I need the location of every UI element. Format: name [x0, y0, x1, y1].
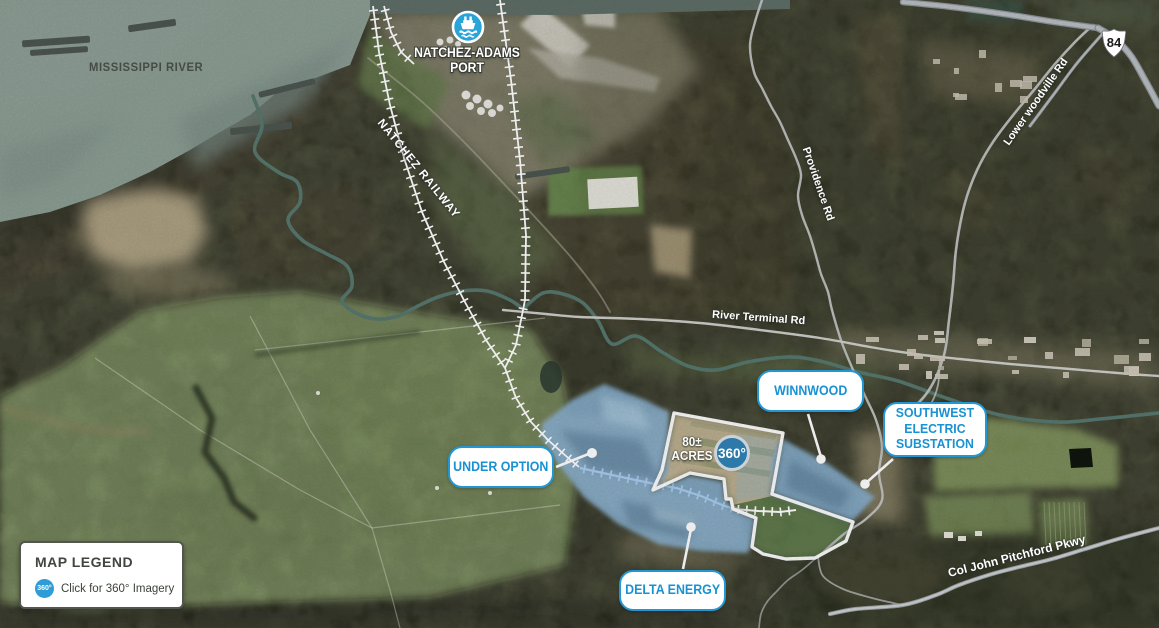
svg-text:84: 84: [1107, 35, 1122, 50]
